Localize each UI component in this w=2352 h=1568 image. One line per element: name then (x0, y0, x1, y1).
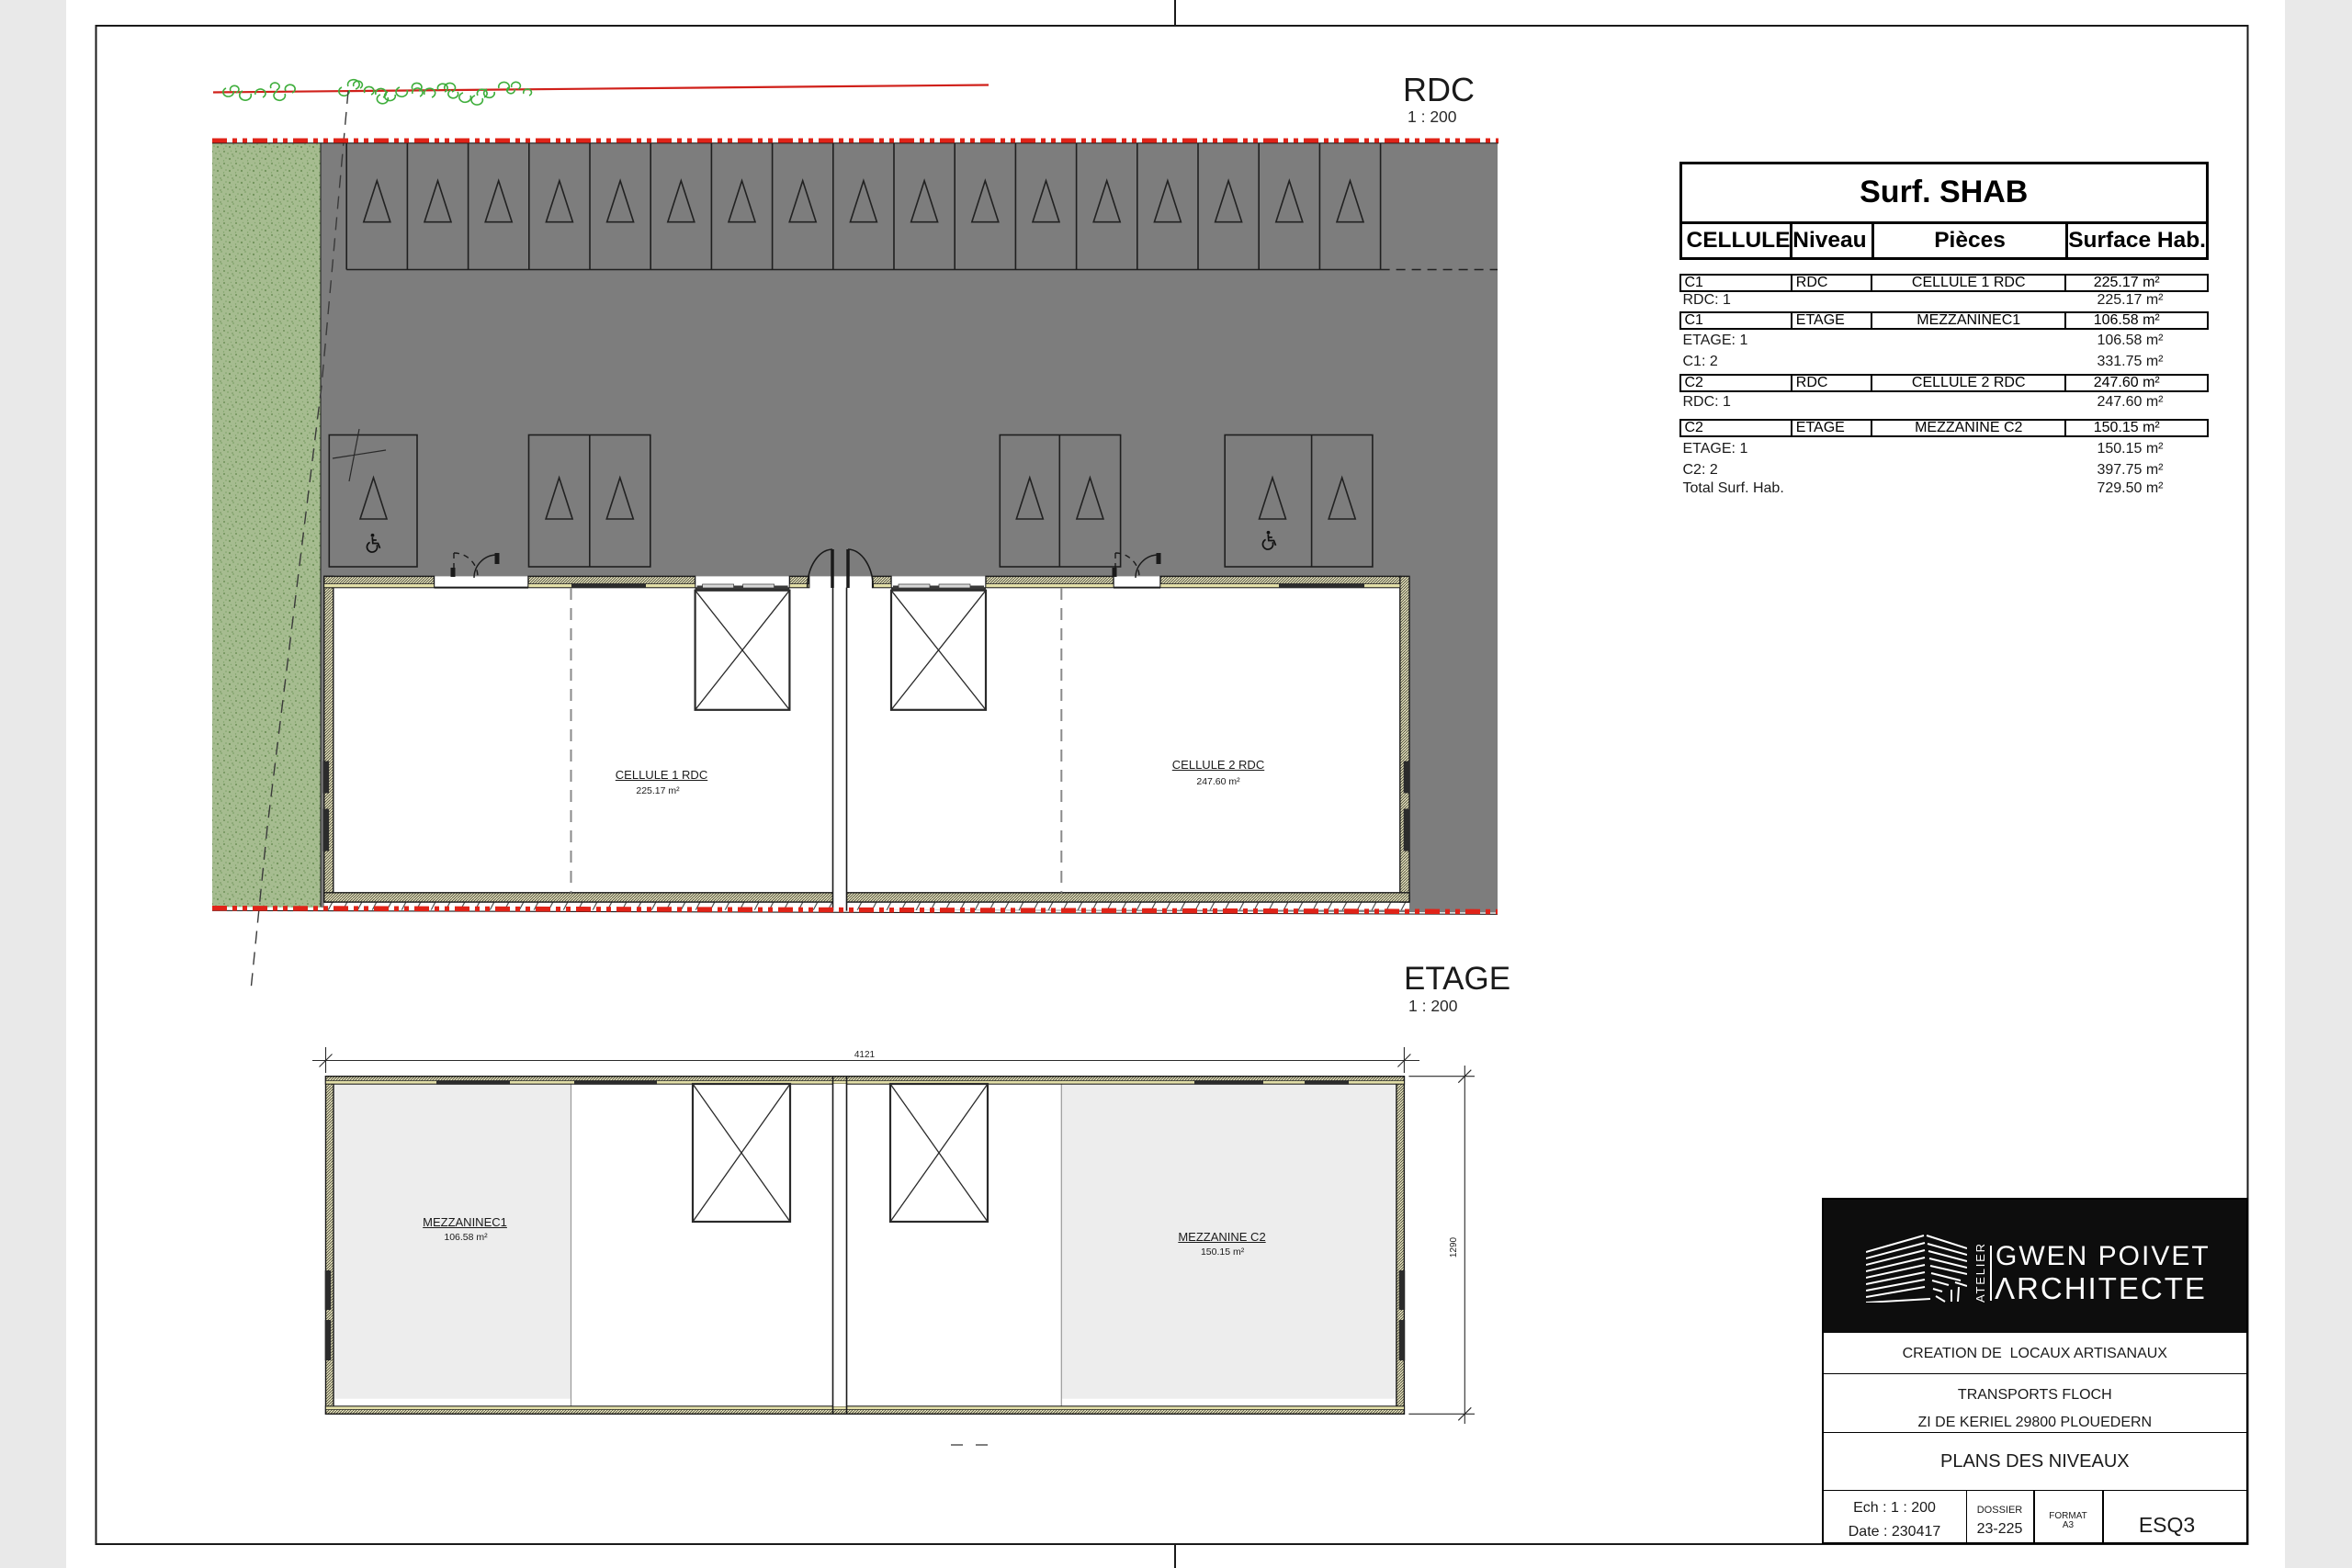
svg-text:1290: 1290 (1449, 1236, 1459, 1258)
svg-text:4121: 4121 (854, 1050, 876, 1060)
